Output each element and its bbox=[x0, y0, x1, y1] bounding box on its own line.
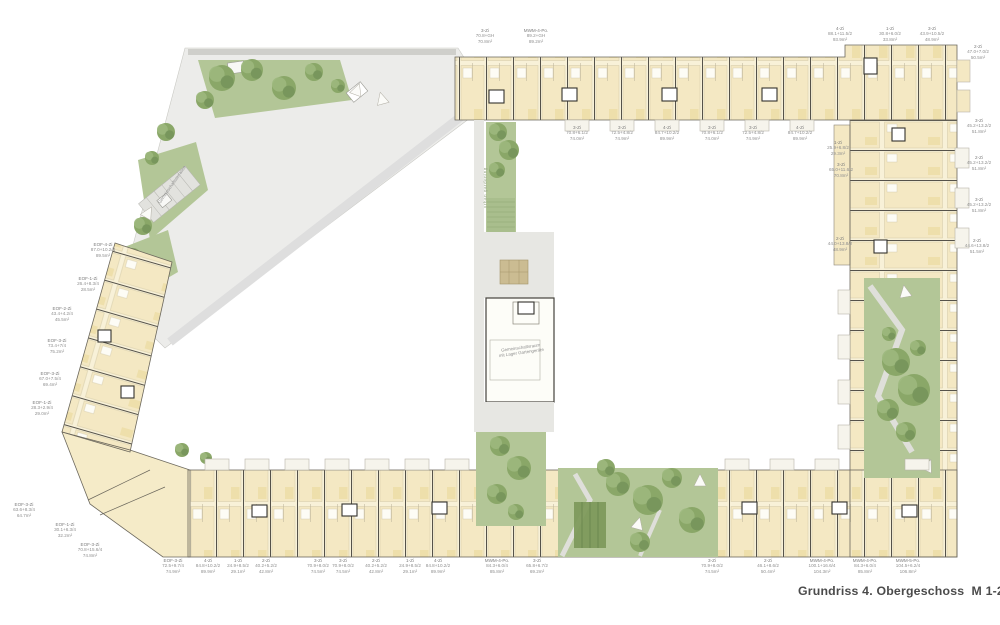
unit-label: 3-Zi65.0+11.6/270.8m² bbox=[806, 162, 876, 178]
unit-label: 3-Zi70.8+6.1/274.0m² bbox=[542, 125, 612, 141]
unit-label: 3-Zi70.9+8.0/274.5m² bbox=[677, 558, 747, 574]
unit-label: 2-Zi40.2+5.2/242.8m² bbox=[231, 558, 301, 574]
unit-label: 4-Zi84.7+10.2/289.9m² bbox=[632, 125, 702, 141]
unit-label: 3-Zi45.2+13.2/251.8m² bbox=[944, 118, 1000, 134]
unit-label: EOF-1-Zi30.1+6.3/432.2m² bbox=[30, 522, 100, 538]
unit-label: 3-Zi70.9+8.0/274.5m² bbox=[283, 558, 353, 574]
unit-label: 1-Zi24.9+8.5/229.1m² bbox=[375, 558, 445, 574]
unit-label: EOF-4-Zi87.0+10.2/489.5m² bbox=[68, 242, 138, 258]
drawing-title: Grundriss 4. Obergeschoss M 1-200 bbox=[798, 584, 1000, 598]
unit-label: EOF-3-Zi70.8+15.6/474.8m² bbox=[55, 542, 125, 558]
unit-label: 4-Zi88.1+11.5/293.9m² bbox=[805, 26, 875, 42]
unit-label: 2-Zi44.0+13.8/248.9m² bbox=[805, 236, 875, 252]
unit-labels-layer: 3-Zi70.8+GH70.8m²MWM-4-Po.89.2+GH89.2m²4… bbox=[0, 0, 1000, 625]
unit-label: EOF-3-Zi72.5+9.7/474.9m² bbox=[138, 558, 208, 574]
unit-label: MWM-4-Po.89.2+GH89.2m² bbox=[501, 28, 571, 44]
unit-label: 1-Zi25.9+6.8/229.3m² bbox=[803, 140, 873, 156]
unit-label: MWM-4-Po.100.1+16.6/4104.3m² bbox=[787, 558, 857, 574]
unit-label: 1-Zi24.9+8.5/229.1m² bbox=[203, 558, 273, 574]
unit-label: 2-Zi46.1+8.6/250.4m² bbox=[733, 558, 803, 574]
unit-label: EOF-1-Zi28.3+2.9/429.0m² bbox=[7, 400, 77, 416]
unit-label: 2-Zi40.2+5.2/242.8m² bbox=[341, 558, 411, 574]
unit-label: MWM-4-Po.84.3+6.0/485.8m² bbox=[830, 558, 900, 574]
unit-label: 3-Zi70.8+GH70.8m² bbox=[450, 28, 520, 44]
unit-label: EOF-3-Zi67.0+7.5/469.4m² bbox=[15, 371, 85, 387]
unit-label: 4-Zi84.7+10.2/289.9m² bbox=[765, 125, 835, 141]
unit-label: 1-Zi30.8+6.0/233.8m² bbox=[855, 26, 925, 42]
unit-label: 3-Zi65.8+6.7/269.2m² bbox=[502, 558, 572, 574]
unit-label: 2-Zi45.2+13.2/251.8m² bbox=[944, 155, 1000, 171]
floor-plan-page: urban gardening Gemeinschaftsraum mit La… bbox=[0, 0, 1000, 625]
unit-label: 3-Zi70.9+8.0/274.5m² bbox=[308, 558, 378, 574]
unit-label: EOF-1-Zi26.4+8.3/428.5m² bbox=[53, 276, 123, 292]
unit-label: EOF-2-Zi43.4+4.2/445.5m² bbox=[27, 306, 97, 322]
unit-label: EOF-3-Zi63.6+8.3/464.7m² bbox=[0, 502, 59, 518]
unit-label: 4-Zi84.8+10.2/289.9m² bbox=[173, 558, 243, 574]
unit-label: 3-Zi70.8+6.1/274.0m² bbox=[677, 125, 747, 141]
unit-label: 3-Zi72.5+4.8/274.9m² bbox=[718, 125, 788, 141]
unit-label: MWM-4-Po.84.3+6.0/485.8m² bbox=[462, 558, 532, 574]
unit-label: 2-Zi47.0+7.0/250.5m² bbox=[943, 44, 1000, 60]
unit-label: MWM-5-Po.104.5+6.2/4106.8m² bbox=[873, 558, 943, 574]
unit-label: 2-Zi44.6+13.8/251.5m² bbox=[942, 238, 1000, 254]
unit-label: EOF-3-Zi73.4+7/475.2m² bbox=[22, 338, 92, 354]
unit-label: 3-Zi72.5+4.8/274.9m² bbox=[587, 125, 657, 141]
unit-label: 4-Zi84.8+10.2/289.9m² bbox=[403, 558, 473, 574]
unit-label: 3-Zi45.2+13.2/251.8m² bbox=[944, 197, 1000, 213]
unit-label: 3-Zi43.9+10.5/248.9m² bbox=[897, 26, 967, 42]
